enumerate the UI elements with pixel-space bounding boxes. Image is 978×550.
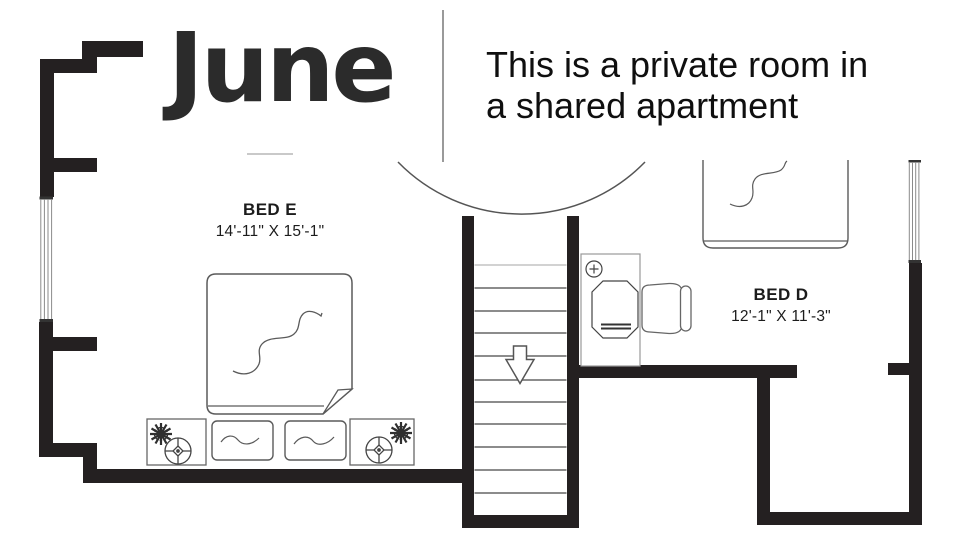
room-dimensions: 12'-1" X 11'-3" (697, 308, 865, 326)
bed-e-furniture (147, 274, 414, 465)
wall-bottomleft-stub (39, 443, 97, 457)
wall-stair-bottom (462, 515, 579, 528)
wall-left-jamb-b (52, 337, 97, 351)
wall-left-jamb-a (52, 158, 97, 172)
wall-stair-left (462, 216, 474, 528)
window-left (40, 197, 54, 323)
pillow-right (285, 421, 346, 460)
wall-topleft-bar (82, 41, 143, 57)
wall-right (909, 263, 922, 525)
room-name: BED E (180, 200, 360, 220)
stairs-down-arrow-icon (506, 346, 534, 384)
floorplan-drawing (0, 0, 978, 550)
room-label-bed-e: BED E 14'-11" X 15'-1" (180, 200, 360, 241)
window-glass-lines (41, 199, 52, 319)
room-dimensions: 14'-11" X 15'-1" (180, 223, 360, 241)
bed-mattress (207, 274, 352, 414)
room-name: BED D (697, 285, 865, 305)
wall-bottomright-vert (757, 378, 770, 518)
bed-d-furniture (581, 160, 848, 366)
wall-bede-bottom (83, 469, 464, 483)
wall-stair-right (567, 216, 579, 528)
wall-left-lower (39, 322, 53, 457)
staircase (475, 265, 567, 493)
pillow-left (212, 421, 273, 460)
table-lamp-icon (366, 437, 392, 463)
bed-d-mattress (703, 160, 848, 248)
stair-treads (475, 288, 567, 493)
room-label-bed-d: BED D 12'-1" X 11'-3" (697, 285, 865, 326)
ceiling-fixture-icon (586, 261, 602, 277)
window-glass-lines (909, 162, 919, 260)
floorplan-page: June This is a private room in a shared … (0, 0, 978, 550)
office-chair-seat (642, 283, 682, 333)
wall-bottomleft-step (83, 455, 97, 471)
door-swing-arc (398, 162, 645, 214)
table-lamp-icon (165, 438, 191, 464)
window-cap (40, 197, 54, 200)
window-cap (909, 260, 922, 263)
wall-left-upper (40, 59, 54, 197)
wall-bedd-divider (579, 365, 797, 378)
office-chair-back (681, 286, 692, 331)
window-right (909, 160, 922, 263)
window-cap (40, 319, 54, 322)
wall-right-stub (888, 363, 909, 375)
wall-bottomright-bottom (757, 512, 922, 525)
